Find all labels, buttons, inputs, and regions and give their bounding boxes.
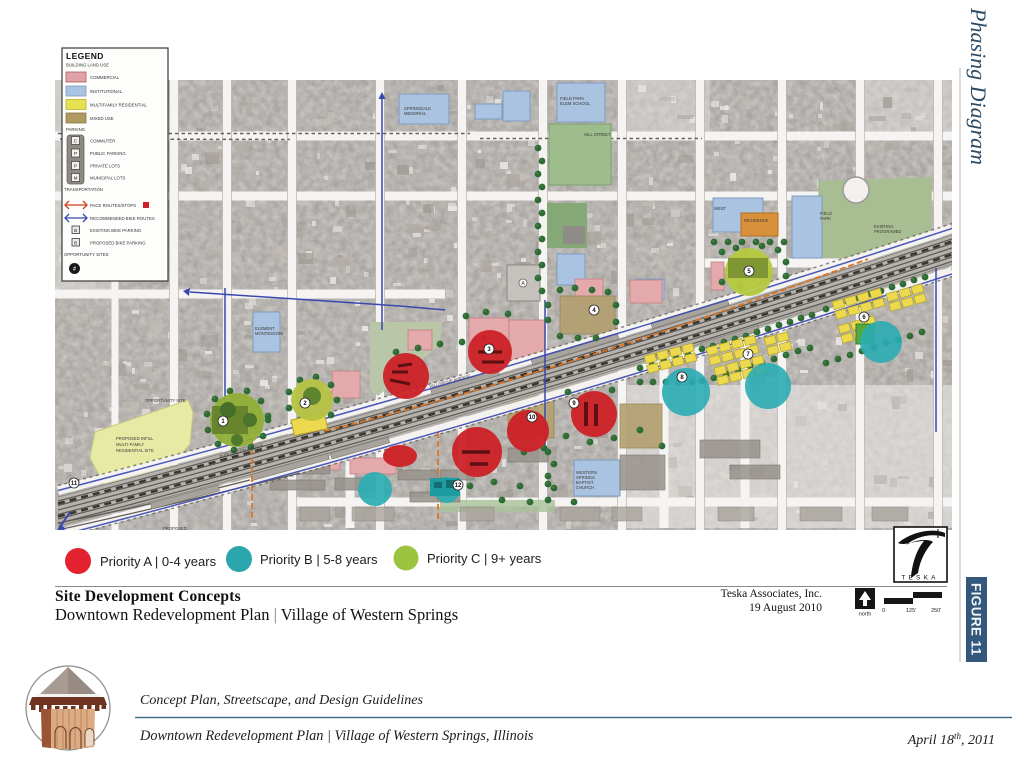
svg-text:12: 12 — [455, 483, 462, 489]
svg-text:Teska Associates, Inc.: Teska Associates, Inc. — [721, 588, 823, 600]
svg-text:B: B — [74, 228, 77, 233]
svg-text:ELEM SCHOOL: ELEM SCHOOL — [560, 101, 591, 106]
svg-text:11: 11 — [71, 481, 78, 487]
svg-text:Priority B | 5-8 years: Priority B | 5-8 years — [260, 552, 378, 567]
svg-text:WEST: WEST — [714, 206, 727, 211]
svg-text:COMMUTER: COMMUTER — [90, 139, 115, 144]
svg-text:OPPORTUNITY SITES: OPPORTUNITY SITES — [64, 252, 109, 257]
svg-text:BUILDING LAND USE: BUILDING LAND USE — [66, 63, 109, 68]
svg-text:Downtown Redevelopment Plan |: Downtown Redevelopment Plan | Village of… — [55, 605, 458, 624]
svg-text:PACE ROUTES/STOPS: PACE ROUTES/STOPS — [90, 203, 136, 208]
svg-text:EXISTING BIKE PARKING: EXISTING BIKE PARKING — [90, 228, 142, 233]
svg-text:HILL STREET: HILL STREET — [584, 132, 611, 137]
svg-text:P: P — [74, 151, 77, 156]
svg-text:INSTITUTIONAL: INSTITUTIONAL — [90, 89, 123, 94]
svg-text:250′: 250′ — [931, 608, 941, 614]
svg-text:MUNICIPAL LOTS: MUNICIPAL LOTS — [90, 176, 125, 181]
svg-text:19 August 2010: 19 August 2010 — [749, 602, 822, 614]
svg-text:COMMERCIAL: COMMERCIAL — [90, 75, 120, 80]
svg-text:10: 10 — [529, 415, 536, 421]
svg-text:PARK: PARK — [820, 216, 831, 221]
svg-text:LEGEND: LEGEND — [66, 51, 104, 61]
svg-text:RECOMMENDED BIKE ROUTES: RECOMMENDED BIKE ROUTES — [90, 216, 155, 221]
svg-text:Site Development Concepts: Site Development Concepts — [55, 588, 241, 605]
svg-text:PROPOSED BIKE PARKING: PROPOSED BIKE PARKING — [90, 241, 146, 246]
svg-text:#: # — [73, 267, 76, 273]
svg-text:PRIVATE LOTS: PRIVATE LOTS — [90, 164, 120, 169]
svg-text:Downtown Redevelopment Plan |: Downtown Redevelopment Plan | Village of… — [139, 728, 534, 744]
svg-text:B: B — [74, 240, 77, 245]
svg-text:PARKING: PARKING — [66, 127, 86, 132]
svg-text:TESKA: TESKA — [901, 575, 938, 582]
svg-text:PROPOSED INFILL: PROPOSED INFILL — [116, 436, 154, 441]
svg-text:MULTI-FAMILY: MULTI-FAMILY — [116, 442, 144, 447]
svg-text:MONTESSORI: MONTESSORI — [255, 331, 283, 336]
svg-text:RESIDENTIAL SITE: RESIDENTIAL SITE — [116, 448, 154, 453]
svg-text:CHURCH: CHURCH — [576, 485, 594, 490]
svg-text:PUBLIC PARKING: PUBLIC PARKING — [90, 151, 126, 156]
svg-text:125′: 125′ — [906, 608, 916, 614]
svg-text:FIGURE 11: FIGURE 11 — [969, 583, 984, 656]
svg-text:PROGRAMED: PROGRAMED — [874, 229, 901, 234]
svg-text:P: P — [74, 164, 77, 169]
svg-text:OPPORTUNITY SITE: OPPORTUNITY SITE — [145, 398, 186, 403]
svg-text:Priority C | 9+ years: Priority C | 9+ years — [427, 551, 542, 566]
svg-text:TRANSPORTATION: TRANSPORTATION — [64, 187, 103, 192]
svg-text:MEMORIAL: MEMORIAL — [404, 111, 427, 116]
svg-text:Phasing Diagram: Phasing Diagram — [966, 7, 991, 165]
svg-text:MIXED USE: MIXED USE — [90, 116, 114, 121]
svg-text:April 18th, 2011: April 18th, 2011 — [907, 731, 995, 748]
svg-text:0: 0 — [882, 608, 885, 614]
svg-text:Concept Plan, Streetscape, and: Concept Plan, Streetscape, and Design Gu… — [140, 693, 423, 708]
svg-text:north: north — [859, 612, 872, 618]
svg-text:M: M — [74, 176, 78, 181]
svg-text:Priority A | 0-4 years: Priority A | 0-4 years — [100, 554, 217, 569]
svg-text:MULTIFAMILY RESIDENTIAL: MULTIFAMILY RESIDENTIAL — [90, 103, 147, 108]
svg-text:RESIDENCE: RESIDENCE — [744, 218, 769, 223]
